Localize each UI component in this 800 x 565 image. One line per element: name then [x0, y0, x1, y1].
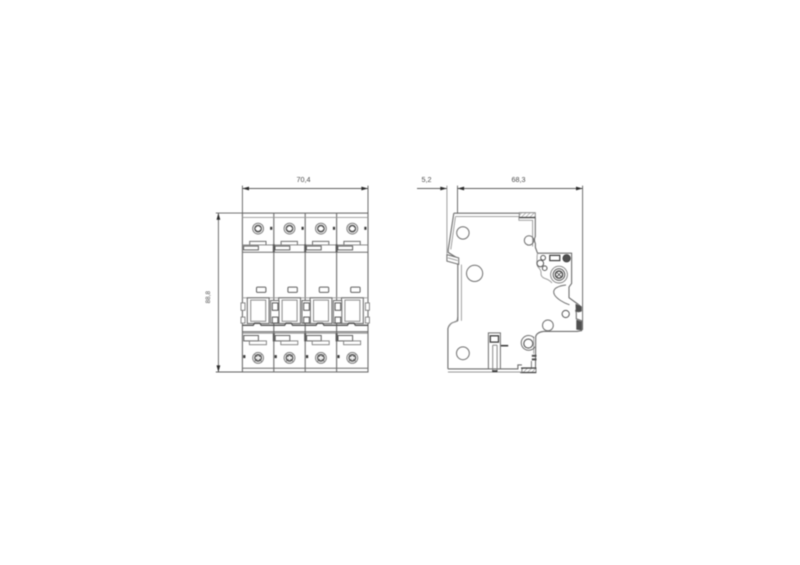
svg-text:70,4: 70,4	[297, 175, 311, 184]
svg-text:5,2: 5,2	[422, 175, 432, 184]
svg-text:88,8: 88,8	[205, 291, 212, 304]
svg-text:68,3: 68,3	[512, 175, 526, 184]
